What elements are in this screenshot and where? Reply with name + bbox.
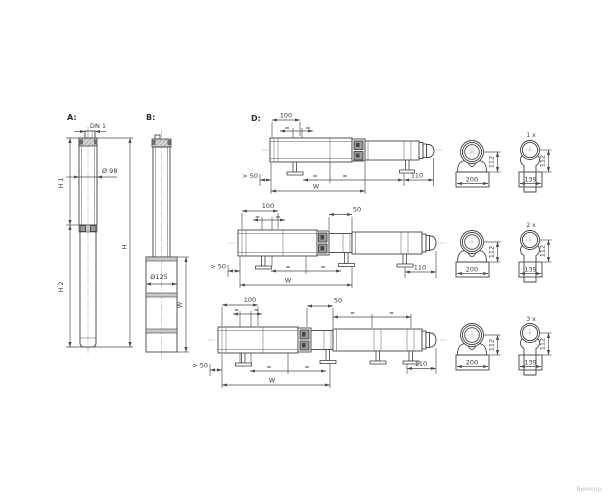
dim-139: 139: [524, 176, 536, 184]
support-foot: [403, 254, 407, 264]
support-foot: [406, 160, 410, 170]
clamp-count: 1 x: [526, 132, 536, 139]
dim-h1: H 1: [57, 177, 65, 188]
dim-dn1: DN 1: [90, 122, 106, 130]
dim-112: 112: [488, 156, 496, 168]
dim-139: 139: [524, 359, 536, 367]
cross-section-row-1: 200 112 1 x 139 112: [456, 132, 552, 192]
dim-w: W: [269, 377, 276, 385]
dim-100: 100: [262, 202, 274, 210]
adapter: [329, 234, 352, 253]
eq-mark: =: [285, 264, 290, 271]
dim-min-50: > 50: [210, 263, 226, 271]
eq-mark: =: [275, 214, 280, 221]
dim-50: 50: [334, 297, 342, 305]
eq-mark: =: [312, 173, 317, 180]
view-d-label: D:: [251, 114, 261, 123]
eq-mark: =: [234, 307, 239, 314]
eq-mark: =: [342, 173, 347, 180]
dim-min-50: > 50: [192, 362, 208, 370]
support-foot: [293, 162, 297, 172]
eq-mark: =: [254, 307, 259, 314]
dim-100: 100: [244, 296, 256, 304]
eq-mark: =: [350, 310, 355, 317]
drawing-canvas: A: DN 1 Ø 98 H 1: [0, 0, 612, 500]
support-foot: [242, 353, 246, 363]
assembly-row-2: 100 = = 50: [210, 202, 448, 288]
dim-112: 112: [539, 155, 547, 167]
eq-mark: =: [266, 364, 271, 371]
motor-end-cap: [430, 333, 437, 347]
dim-110: 110: [414, 264, 426, 272]
clamp-count: 3 x: [526, 316, 536, 323]
support-foot: [326, 350, 330, 361]
dim-50: 50: [353, 206, 361, 214]
view-a-label: A:: [67, 113, 77, 122]
dim-diameter-125: Ø125: [150, 273, 168, 281]
dim-139: 139: [524, 266, 536, 274]
support-foot: [376, 351, 380, 361]
dim-200: 200: [466, 359, 478, 367]
support-foot: [262, 256, 266, 266]
dim-112: 112: [539, 338, 547, 350]
adapter: [311, 331, 333, 350]
cross-section-row-3: 200 112 3 x 139 112: [456, 316, 552, 375]
dim-h-total: H: [121, 244, 129, 249]
pump-body: [238, 230, 317, 256]
eq-mark: =: [304, 364, 309, 371]
assembly-row-3: 100 = = 50 = =: [192, 296, 448, 388]
dim-w: W: [285, 277, 292, 285]
clamp-count: 2 x: [526, 222, 536, 229]
eq-mark: =: [305, 125, 310, 132]
dim-110: 110: [415, 360, 427, 368]
dim-112: 112: [539, 245, 547, 257]
motor-end-cap: [430, 236, 437, 250]
dim-200: 200: [466, 266, 478, 274]
pump-body: [218, 327, 298, 353]
motor-body: [352, 232, 422, 254]
dim-100: 100: [280, 112, 292, 120]
eq-mark: =: [389, 310, 394, 317]
support-foot: [345, 253, 349, 264]
cross-section-row-2: 200 112 2 x 139 112: [456, 222, 552, 282]
dim-h2: H 2: [57, 281, 65, 292]
dim-112: 112: [488, 246, 496, 258]
technical-drawing: A: DN 1 Ø 98 H 1: [0, 0, 612, 500]
eq-mark: =: [320, 264, 325, 271]
dim-diameter-98: Ø 98: [102, 167, 117, 175]
dim-w: W: [176, 301, 184, 308]
eq-mark: =: [284, 125, 289, 132]
dim-110: 110: [411, 172, 423, 180]
view-b-label: B:: [146, 113, 155, 122]
assembly-row-1: D: 100 = = > 50: [242, 112, 444, 195]
dim-200: 200: [466, 176, 478, 184]
watermark-text: Вимкор: [576, 485, 602, 493]
pump-b-port: [155, 135, 160, 139]
dim-112: 112: [488, 339, 496, 351]
dim-w: W: [313, 183, 320, 191]
motor-body: [333, 329, 422, 351]
support-foot: [409, 351, 413, 361]
dim-min-50: > 50: [242, 172, 258, 180]
pump-b-view: B: Ø125 W: [146, 113, 189, 360]
motor-end-cap: [427, 145, 435, 158]
eq-mark: =: [255, 214, 260, 221]
pump-a-view: A: DN 1 Ø 98 H 1: [57, 113, 133, 355]
pump-a-port: [85, 131, 95, 138]
